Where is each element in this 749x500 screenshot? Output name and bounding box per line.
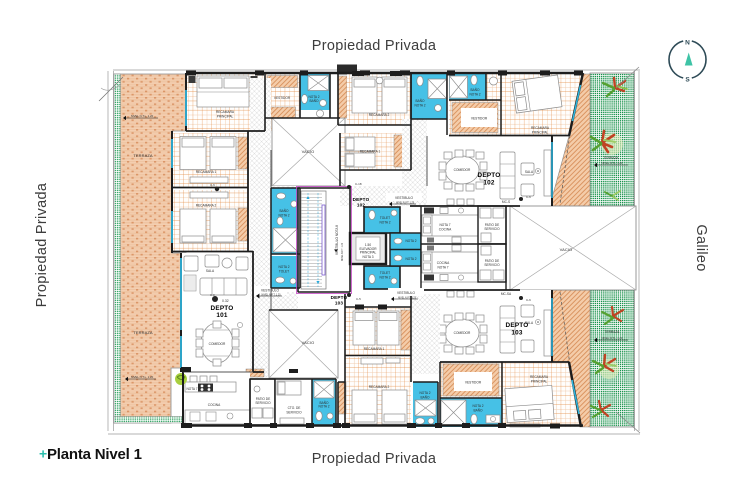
svg-text:+: + [39, 446, 47, 462]
svg-text:102: 102 [483, 180, 495, 187]
svg-text:RECAMARA: RECAMARA [531, 126, 550, 130]
svg-text:RECAMARA 1: RECAMARA 1 [364, 347, 385, 351]
svg-text:C-18: C-18 [355, 182, 362, 186]
svg-text:DEPTO: DEPTO [211, 305, 234, 312]
svg-text:RECAMARA 2: RECAMARA 2 [369, 385, 390, 389]
svg-text:NOTA 7: NOTA 7 [439, 223, 450, 227]
svg-text:BAÑO: BAÑO [470, 87, 480, 92]
svg-text:NOTA 2: NOTA 2 [419, 391, 430, 395]
svg-text:BAÑO: BAÑO [279, 208, 289, 213]
svg-text:SALA: SALA [525, 170, 534, 174]
svg-text:DEPTO: DEPTO [506, 322, 529, 329]
svg-text:MC-SA: MC-SA [501, 292, 512, 296]
svg-text:TOLET: TOLET [380, 271, 390, 275]
svg-text:RECAMARA: RECAMARA [216, 110, 235, 114]
svg-text:NIVEL N.P.T. 1.20: NIVEL N.P.T. 1.20 [398, 298, 417, 300]
svg-text:C-6: C-6 [210, 183, 215, 187]
svg-text:Galileo: Galileo [693, 224, 709, 271]
svg-text:TERRAZA: TERRAZA [604, 156, 620, 160]
svg-text:102: 102 [357, 203, 366, 208]
svg-text:103: 103 [511, 330, 523, 337]
svg-text:DEPTO: DEPTO [331, 295, 348, 300]
svg-text:NIVEL N.T.L. 1.20: NIVEL N.T.L. 1.20 [602, 161, 623, 165]
svg-text:BAÑO: BAÑO [309, 98, 319, 103]
svg-text:Propiedad Privada: Propiedad Privada [312, 451, 437, 467]
svg-text:COCINA: COCINA [208, 403, 221, 407]
svg-text:TERRAZA: TERRAZA [605, 330, 621, 334]
svg-text:PRINCIPAL: PRINCIPAL [531, 380, 548, 384]
svg-text:Planta Nivel 1: Planta Nivel 1 [47, 446, 142, 463]
svg-text:NOTA 2: NOTA 2 [405, 257, 416, 261]
svg-text:C-5: C-5 [356, 297, 361, 301]
svg-text:SERVICIO: SERVICIO [484, 227, 500, 231]
svg-text:RECAMARA 1: RECAMARA 1 [360, 150, 381, 154]
svg-text:VESTIDOR: VESTIDOR [465, 381, 482, 385]
svg-text:COMEDOR: COMEDOR [454, 168, 471, 172]
svg-text:NOTA 2: NOTA 2 [414, 104, 425, 108]
svg-text:PRINCIPAL: PRINCIPAL [360, 251, 377, 255]
svg-text:C-6: C-6 [526, 298, 531, 302]
svg-text:COMEDOR: COMEDOR [454, 331, 471, 335]
svg-text:C-6: C-6 [526, 195, 531, 199]
svg-text:DEPTO: DEPTO [353, 197, 370, 202]
svg-text:VESTIDOR: VESTIDOR [471, 117, 488, 121]
svg-text:103: 103 [335, 301, 344, 306]
svg-text:NOTA 2: NOTA 2 [278, 265, 289, 269]
svg-text:NOTA 7: NOTA 7 [437, 266, 448, 270]
svg-text:NOTA 2: NOTA 2 [379, 221, 390, 225]
svg-text:TOLET: TOLET [279, 270, 289, 274]
svg-text:Propiedad Privada: Propiedad Privada [34, 182, 50, 307]
svg-text:VACIO: VACIO [560, 247, 573, 252]
svg-text:Propiedad Privada: Propiedad Privada [312, 38, 437, 54]
svg-text:COCINA: COCINA [437, 261, 450, 265]
svg-text:CTO. DE: CTO. DE [288, 406, 301, 410]
svg-text:C-3: C-3 [210, 293, 215, 297]
svg-text:SERVICIO: SERVICIO [255, 401, 271, 405]
svg-text:COMEDOR: COMEDOR [209, 342, 226, 346]
svg-text:TERRAZA: TERRAZA [133, 153, 153, 158]
svg-text:DEPTO: DEPTO [478, 172, 501, 179]
svg-text:NOTA 3: NOTA 3 [362, 255, 373, 259]
svg-text:VACIO: VACIO [302, 149, 315, 154]
svg-text:NIVEL N.T.L. 1.20: NIVEL N.T.L. 1.20 [131, 375, 154, 379]
svg-text:VESTIBULO: VESTIBULO [397, 291, 415, 295]
svg-text:VACIO: VACIO [302, 340, 315, 345]
svg-text:BAÑO: BAÑO [420, 395, 430, 400]
svg-text:0.32: 0.32 [222, 299, 229, 303]
svg-text:NOTA 2: NOTA 2 [469, 93, 480, 97]
svg-text:PRINCIPAL: PRINCIPAL [532, 131, 549, 135]
svg-text:PRINCIPAL: PRINCIPAL [217, 115, 234, 119]
svg-text:N: N [685, 40, 690, 47]
svg-text:S: S [685, 77, 690, 84]
svg-text:NOTA 7: NOTA 7 [186, 387, 197, 391]
svg-text:RECAMARA 1: RECAMARA 1 [196, 170, 217, 174]
svg-text:NOTA 2: NOTA 2 [472, 404, 483, 408]
svg-text:NIVEL N.T.L. 1.20: NIVEL N.T.L. 1.20 [602, 336, 623, 340]
svg-text:NIVEL N.T.L. 1.20: NIVEL N.T.L. 1.20 [131, 114, 154, 118]
svg-text:SALA: SALA [206, 269, 215, 273]
svg-text:BAÑO: BAÑO [415, 98, 425, 103]
svg-text:RECAMARA 2: RECAMARA 2 [196, 204, 217, 208]
svg-text:NIVEL N.P.T. 1.20: NIVEL N.P.T. 1.20 [396, 203, 415, 205]
svg-text:MC-S: MC-S [502, 200, 510, 204]
svg-text:NOTA 2: NOTA 2 [379, 276, 390, 280]
svg-text:TERRAZA: TERRAZA [133, 330, 153, 335]
svg-text:RECAMARA 2: RECAMARA 2 [369, 113, 390, 117]
svg-text:SERVICIO: SERVICIO [286, 411, 302, 415]
svg-text:TOLET: TOLET [380, 216, 390, 220]
svg-text:VESTIDOR: VESTIDOR [274, 96, 291, 100]
svg-text:VESTIBULO: VESTIBULO [261, 289, 279, 293]
svg-text:COCINA: COCINA [439, 228, 452, 232]
svg-text:NOTA 2: NOTA 2 [405, 239, 416, 243]
svg-text:101: 101 [216, 312, 228, 319]
svg-text:NIVEL N.P.T. 1.20: NIVEL N.P.T. 1.20 [342, 242, 344, 261]
svg-text:VESTIBULO: VESTIBULO [395, 196, 413, 200]
svg-text:RECAMARA: RECAMARA [530, 375, 549, 379]
svg-text:BAÑO: BAÑO [473, 408, 483, 413]
svg-text:SERVICIO: SERVICIO [484, 263, 500, 267]
svg-text:NOTA 2: NOTA 2 [318, 405, 329, 409]
